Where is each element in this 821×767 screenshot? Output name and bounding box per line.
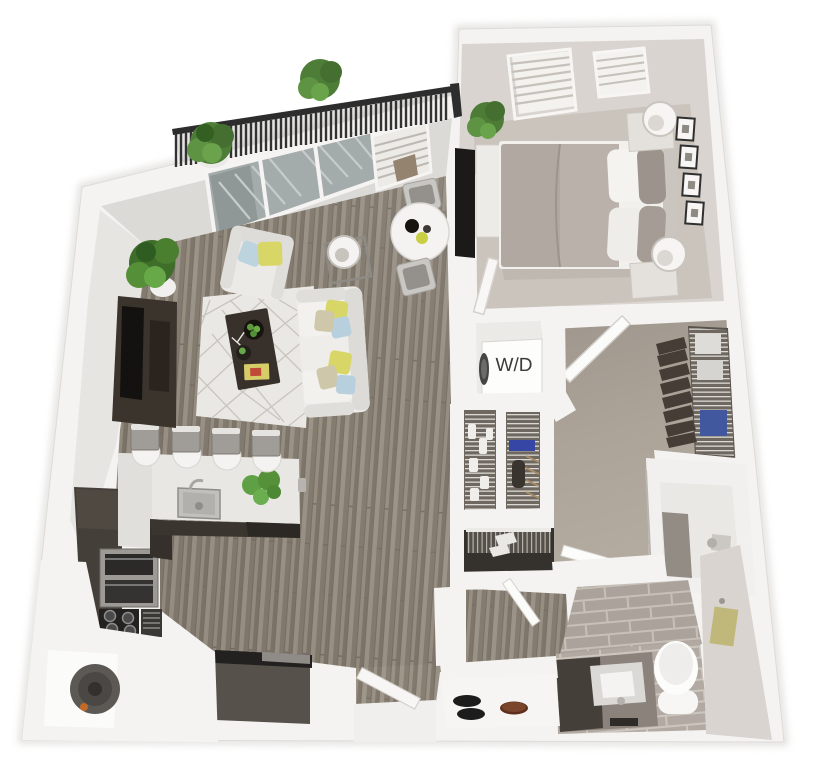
svg-text:W/D: W/D (496, 355, 533, 376)
